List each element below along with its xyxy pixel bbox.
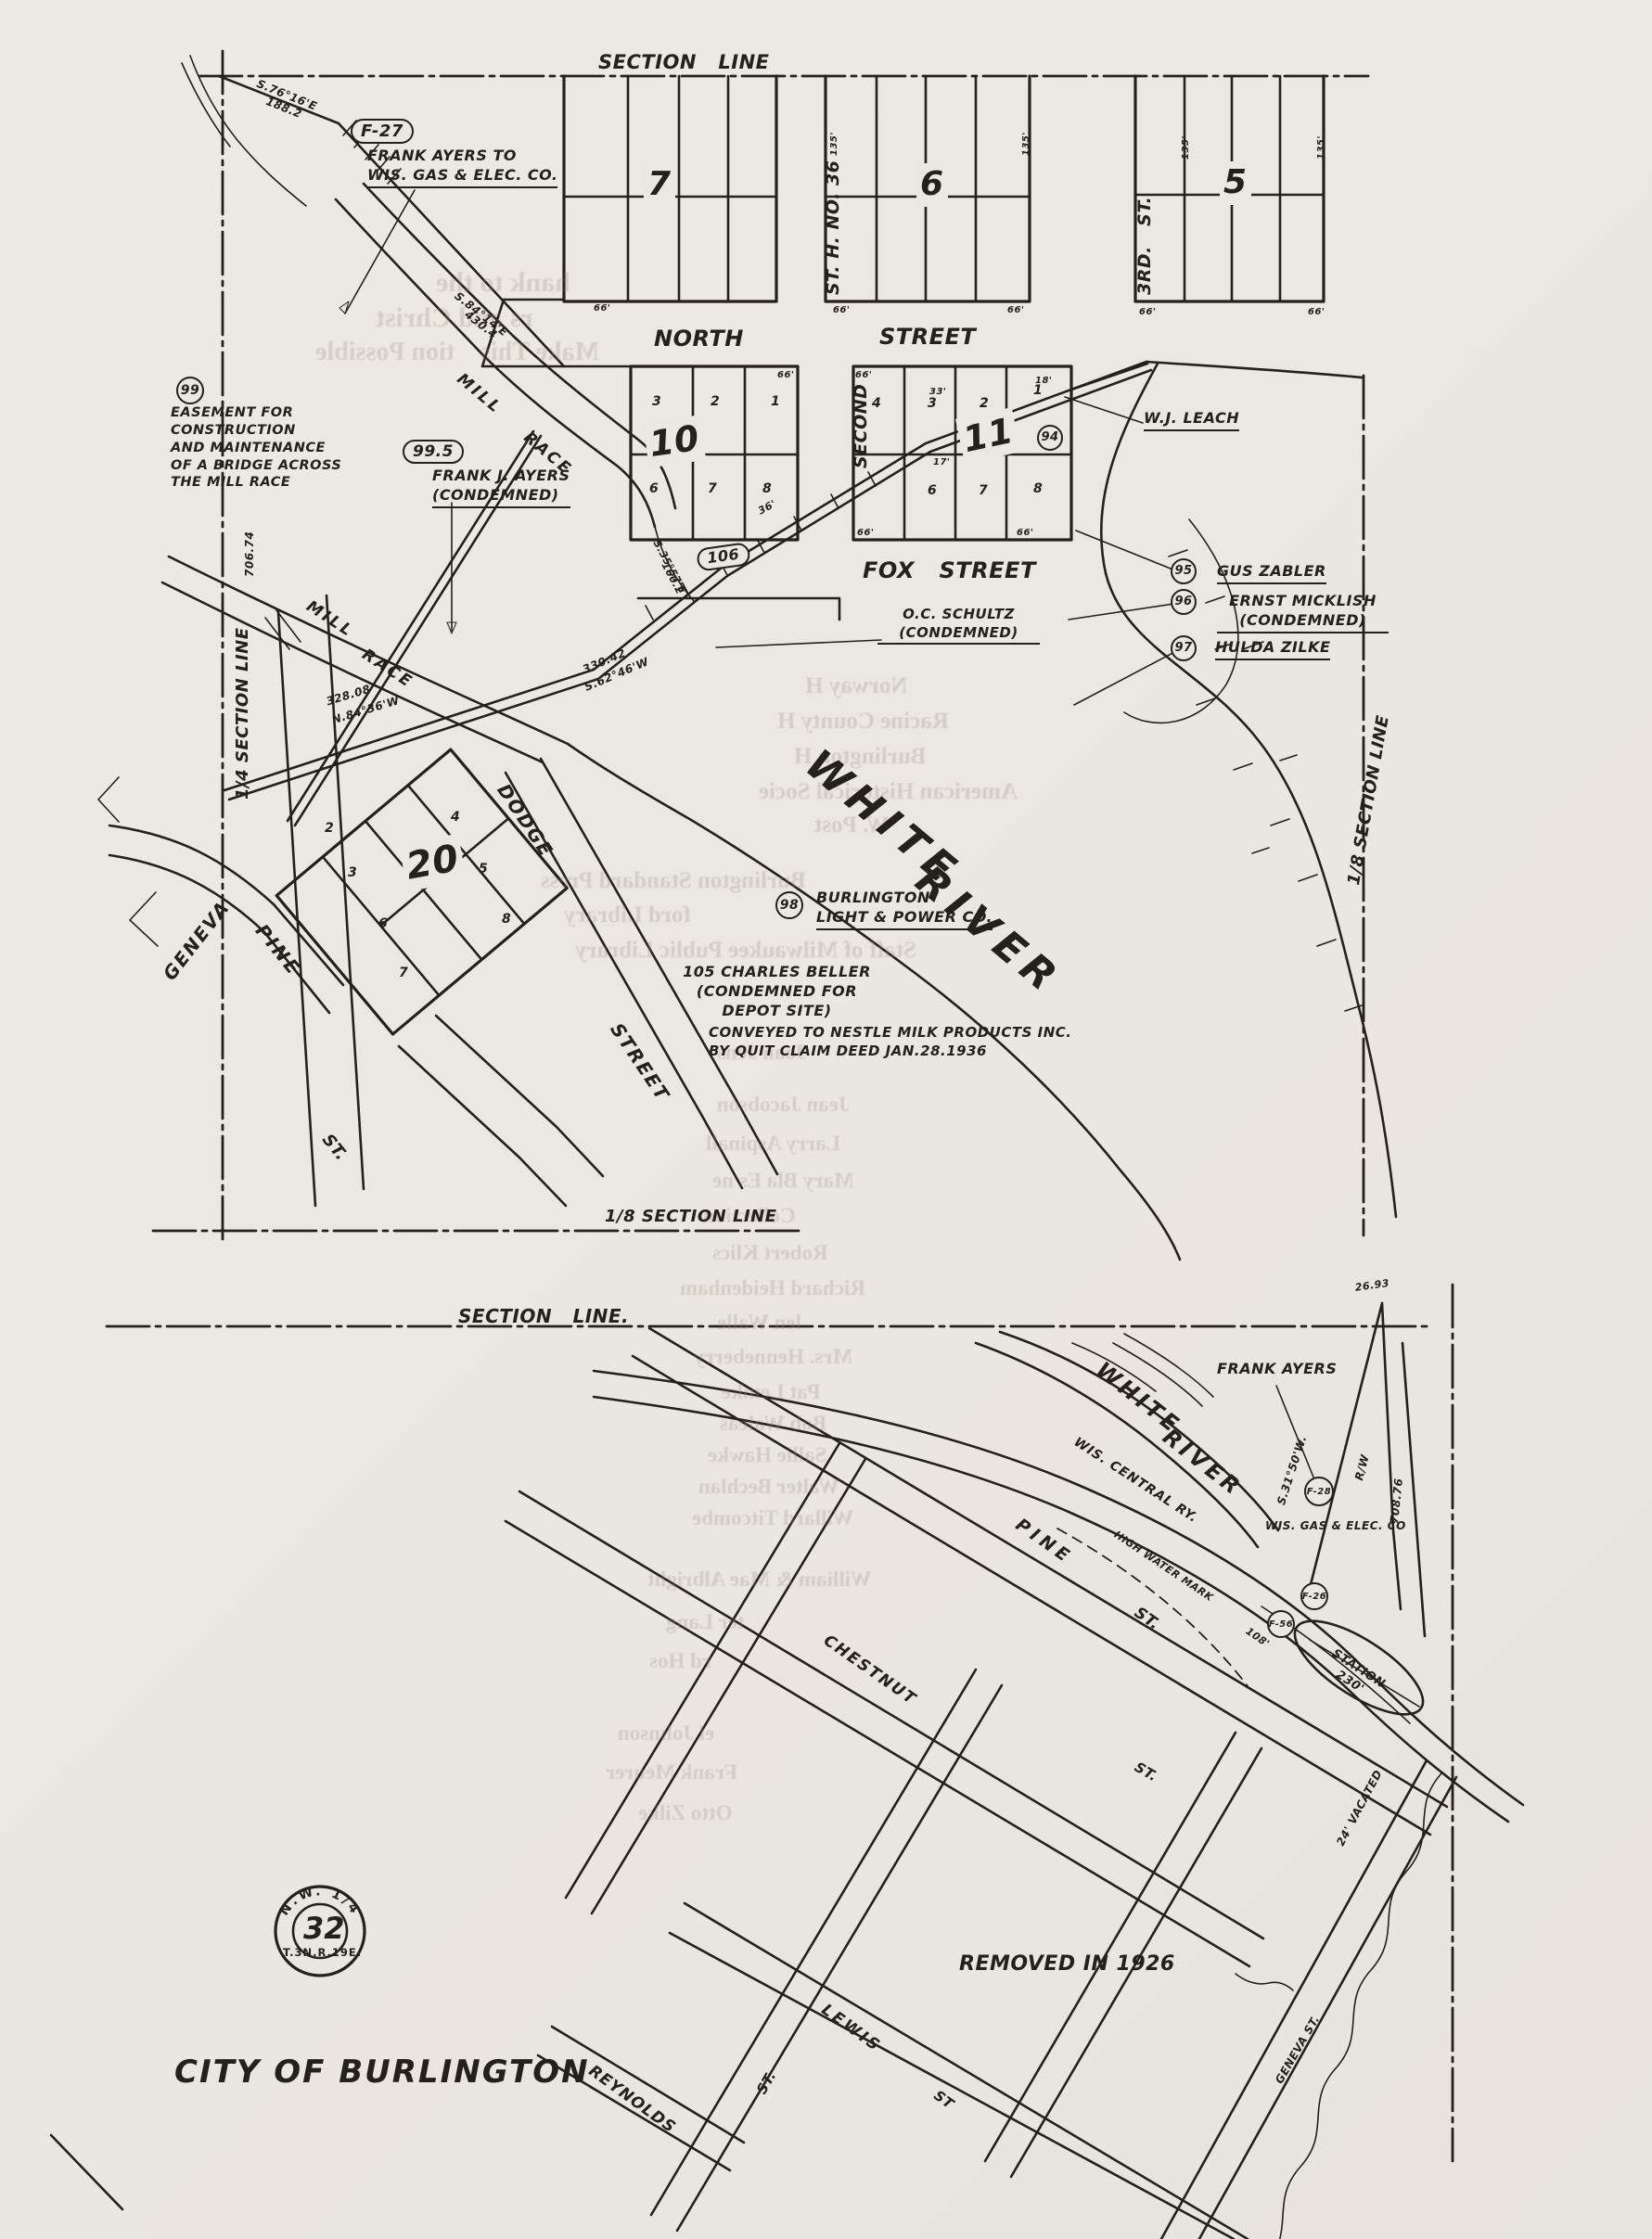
badge-106: 106 xyxy=(696,542,751,571)
frank-ayers-lower-annotation: FRANK AYERS xyxy=(1217,1360,1337,1379)
block-20-number: 20 xyxy=(399,834,467,891)
dim-66-h: 66' xyxy=(857,527,874,539)
dim-66-b: 66' xyxy=(833,304,850,316)
quarter-section-line-label: 1/4 SECTION LINE xyxy=(232,628,253,800)
mill-race-label-1a: MILL xyxy=(453,369,506,419)
schultz-annotation: O.C. SCHULTZ (CONDEMNED) xyxy=(877,606,1040,645)
badge-f26: F-26 xyxy=(1300,1582,1328,1610)
pine-st-abbrev-upper: ST. xyxy=(317,1130,352,1165)
dim-66-c: 66' xyxy=(1007,304,1024,316)
mill-race-label-2a: MILL xyxy=(302,596,358,643)
badge-f28: F-28 xyxy=(1304,1477,1334,1506)
block-20-lot-5: 5 xyxy=(479,861,488,877)
dim-66-i: 66' xyxy=(1017,527,1033,539)
seal-section-number: 32 xyxy=(303,1911,345,1946)
chestnut-st-abbrev: ST. xyxy=(1131,1759,1160,1786)
block-10-lot-6: 6 xyxy=(649,480,659,497)
chestnut-street-label: CHESTNUT xyxy=(819,1631,920,1710)
geneva-st-lower-label: GENEVA ST. xyxy=(1273,2013,1324,2086)
lewis-st-abbrev: ST xyxy=(930,2087,957,2114)
nestle-annotation: CONVEYED TO NESTLE MILK PRODUCTS INC. BY… xyxy=(709,1024,1071,1060)
block-5-number: 5 xyxy=(1220,161,1251,205)
reynolds-street-label: REYNOLDS xyxy=(584,2061,680,2138)
badge-f56: F-56 xyxy=(1267,1610,1295,1638)
dodge-street-label: DODGE xyxy=(492,779,558,862)
north-street-label-1: NORTH xyxy=(654,325,744,353)
rw-label: R/W xyxy=(1352,1453,1373,1482)
pine-street-label-lower: PINE xyxy=(1011,1514,1077,1569)
survey-map-page: N.W. 1/4 hank to thers and ChristMake Th… xyxy=(0,0,1652,2239)
badge-97: 97 xyxy=(1171,635,1197,661)
eighth-section-line-label-h: 1/8 SECTION LINE xyxy=(605,1206,777,1227)
block-11-lot-4: 4 xyxy=(872,395,881,412)
north-street-label-2: STREET xyxy=(879,323,976,352)
zilke-annotation: HULDA ZILKE xyxy=(1215,638,1330,660)
removed-1926-annotation: REMOVED IN 1926 xyxy=(959,1951,1175,1978)
badge-f27: F-27 xyxy=(351,119,414,144)
pine-st-abbrev-lower: ST. xyxy=(1130,1603,1163,1635)
block-10-lot-1: 1 xyxy=(771,393,780,410)
pine-street-label-upper: PINE xyxy=(250,919,307,980)
badge-95: 95 xyxy=(1171,558,1197,584)
dim-135-c: 135' xyxy=(1180,135,1192,160)
block-20-lot-3: 3 xyxy=(348,864,357,881)
beller-annotation: 105 CHARLES BELLER (CONDEMNED FOR DEPOT … xyxy=(682,963,872,1020)
block-11-lot-6: 6 xyxy=(928,482,937,499)
block-6-number: 6 xyxy=(916,163,948,207)
dim-66-e: 66' xyxy=(1308,306,1325,318)
dim-135-a: 135' xyxy=(828,132,840,156)
block-11-lot-7: 7 xyxy=(979,482,988,499)
badge-99-5: 99.5 xyxy=(403,440,464,464)
map-label-layer: SECTION LINEST. H. NO. 36SECOND3RD. ST.N… xyxy=(0,0,1652,2239)
block-7-number: 7 xyxy=(644,163,675,207)
eighth-section-line-label-v: 1/8 SECTION LINE xyxy=(1343,713,1394,887)
block-20-lot-2: 2 xyxy=(325,820,334,837)
block-20-lot-6: 6 xyxy=(378,915,388,932)
frank-j-ayers-annotation: FRANK J. AYERS (CONDEMNED) xyxy=(432,467,570,508)
block-20-lot-8: 8 xyxy=(502,911,511,928)
dim-66-g: 66' xyxy=(855,369,872,381)
badge-98: 98 xyxy=(775,891,803,919)
meas-708-76: 708.76 xyxy=(1388,1478,1407,1525)
block-10-lot-2: 2 xyxy=(711,393,720,410)
ayers-wisgas-annotation: FRANK AYERS TO WIS. GAS & ELEC. CO. xyxy=(367,147,557,188)
wis-gas-lower-annotation: WIS. GAS & ELEC. CO xyxy=(1265,1519,1406,1534)
dim-33: 33' xyxy=(929,386,946,398)
meas-26-93: 26.93 xyxy=(1354,1277,1390,1295)
badge-94: 94 xyxy=(1037,425,1063,451)
zabler-annotation: GUS ZABLER xyxy=(1217,562,1326,584)
vacated-label: 24' VACATED xyxy=(1334,1768,1386,1849)
high-water-mark-label: HIGH WATER MARK xyxy=(1111,1529,1215,1605)
section-line-lower-label: SECTION LINE. xyxy=(458,1304,629,1328)
dodge-street-label-2: STREET xyxy=(605,1018,674,1106)
lewis-street-label: LEWIS xyxy=(817,2000,885,2057)
badge-96: 96 xyxy=(1171,589,1197,615)
seal-township-range: T.3N.R.19E. xyxy=(283,1946,362,1959)
easement-annotation: EASEMENT FOR CONSTRUCTION AND MAINTENANC… xyxy=(171,404,341,492)
dim-36: 36' xyxy=(756,498,779,518)
cross-street-st-abbrev: ST. xyxy=(753,2068,781,2098)
map-title: CITY OF BURLINGTON xyxy=(174,2053,590,2091)
block-20-lot-4: 4 xyxy=(451,809,460,825)
meas-706-74: 706.74 xyxy=(243,531,258,577)
block-11-lot-2: 2 xyxy=(980,395,989,412)
block-11-lot-8: 8 xyxy=(1033,480,1043,497)
dim-17: 17' xyxy=(933,456,950,468)
fox-street-label: FOX STREET xyxy=(863,557,1036,585)
highway-36-label: ST. H. NO. 36 xyxy=(822,160,845,295)
micklish-annotation: ERNST MICKLISH (CONDEMNED) xyxy=(1217,592,1389,633)
block-10-number: 10 xyxy=(643,415,706,468)
third-street-label: 3RD. ST. xyxy=(1133,197,1157,295)
dim-135-b: 135' xyxy=(1020,132,1032,156)
leach-annotation: W.J. LEACH xyxy=(1144,409,1239,431)
block-10-lot-8: 8 xyxy=(762,480,772,497)
block-11-number: 11 xyxy=(955,407,1021,464)
dim-135-d: 135' xyxy=(1315,135,1327,160)
geneva-street-label: GENEVA xyxy=(158,896,235,985)
second-street-label: SECOND xyxy=(850,384,873,468)
block-10-lot-3: 3 xyxy=(652,393,661,410)
badge-99: 99 xyxy=(176,377,204,404)
dim-66-f: 66' xyxy=(777,369,794,381)
dim-18: 18' xyxy=(1035,375,1052,387)
block-10-lot-7: 7 xyxy=(708,480,717,497)
white-river-label-lower-2: RIVER xyxy=(1157,1423,1249,1503)
dim-66-d: 66' xyxy=(1139,306,1156,318)
section-line-top-label: SECTION LINE xyxy=(598,50,770,75)
dim-66-a: 66' xyxy=(594,302,610,314)
block-20-lot-7: 7 xyxy=(399,965,408,981)
white-river-label-upper-2: RIVER xyxy=(904,854,1072,1007)
station-label: STATION 230' xyxy=(1310,1640,1399,1712)
